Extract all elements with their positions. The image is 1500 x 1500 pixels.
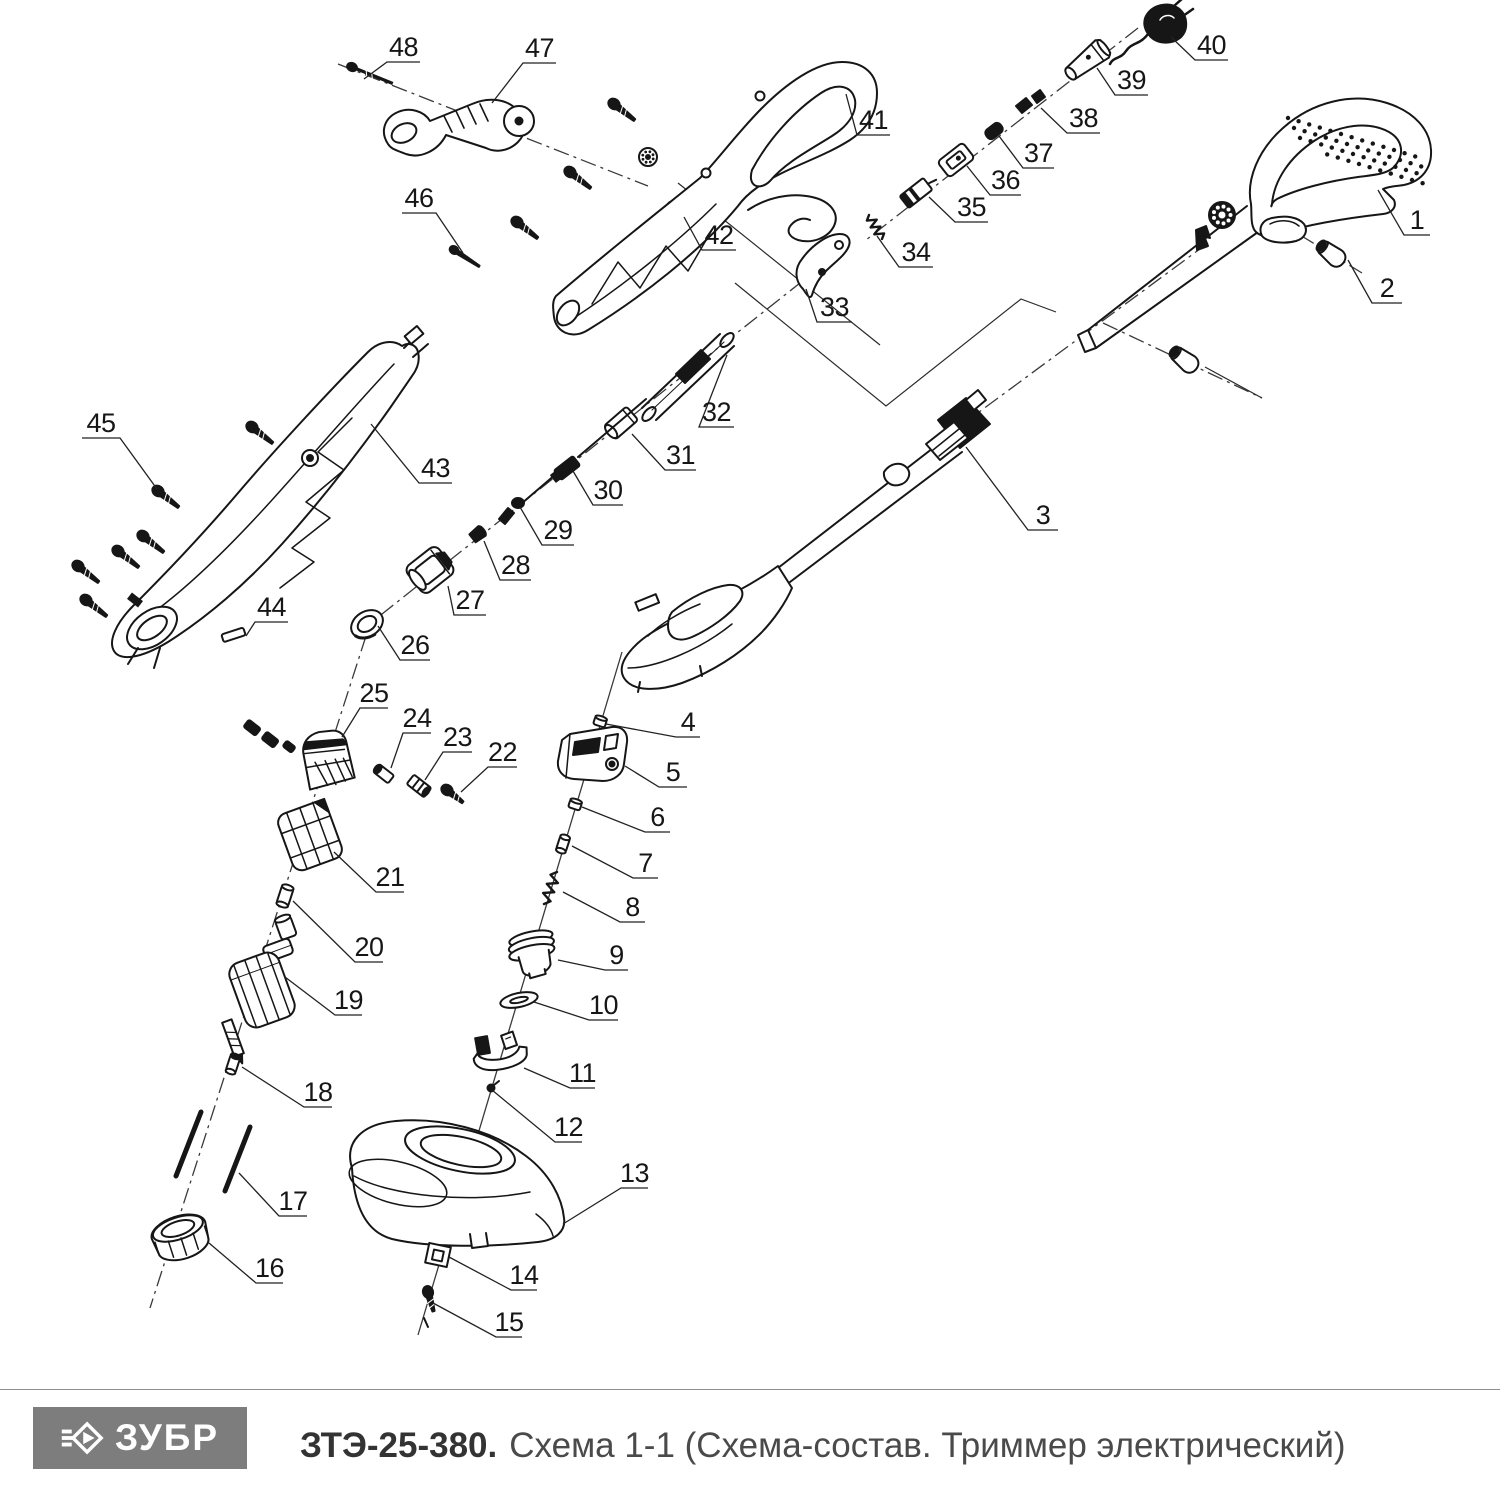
callout-28: 28 [484,541,531,580]
part-number: 5 [666,757,681,787]
callout-14: 14 [449,1257,539,1290]
part-number: 18 [303,1077,332,1107]
part-33-trigger [796,234,849,297]
part-38-terminals [1016,90,1045,113]
part-35-connector [900,172,940,208]
callout-16: 16 [209,1243,284,1283]
part-number: 22 [488,737,517,767]
part-number: 14 [509,1260,539,1290]
part-number: 7 [638,848,653,878]
caption-text: Схема 1-1 (Схема-состав. Триммер электри… [509,1426,1345,1466]
callout-7: 7 [572,846,658,878]
callout-38: 38 [1041,103,1100,133]
part-2b-knob [1166,343,1202,377]
callout-10: 10 [534,990,618,1020]
part-number: 34 [901,237,931,267]
part-number: 16 [255,1253,284,1283]
part-4-ring [593,714,608,727]
part-number: 47 [525,33,554,63]
part-number: 37 [1024,138,1053,168]
part-7-sleeve [555,833,570,854]
callout-2: 2 [1348,260,1402,303]
model-number: ЗТЭ-25-380. [300,1426,497,1466]
part-17-line-pins [176,1112,250,1191]
callout-43: 43 [371,424,452,483]
callout-47: 47 [492,33,556,103]
part-23-brush [407,774,432,797]
part-number: 48 [389,32,418,62]
callout-8: 8 [563,892,645,922]
callout-19: 19 [285,977,363,1015]
part-number: 11 [569,1058,596,1088]
part-40-plug [1110,0,1193,64]
part-number: 38 [1069,103,1098,133]
callout-5: 5 [625,757,687,787]
part-9-spool [505,927,560,981]
callout-11: 11 [524,1058,596,1088]
part-8-spring [543,872,558,904]
zubr-logo-icon [61,1415,107,1461]
part-number: 21 [375,862,404,892]
part-number: 35 [957,192,986,222]
part-18-bushing [225,1052,241,1075]
part-number: 12 [554,1112,583,1142]
part-15-screw-tip [424,1318,428,1327]
part-46-screw [448,244,481,269]
part-number: 19 [334,985,363,1015]
callout-20: 20 [293,901,384,962]
callout-45: 45 [82,408,157,489]
callout-21: 21 [334,852,405,892]
brand-text: ЗУБР [115,1417,219,1459]
callout-29: 29 [520,507,574,545]
callout-36: 36 [967,165,1021,195]
part-number: 26 [400,630,429,660]
part-number: 6 [650,802,665,832]
callout-30: 30 [573,471,623,505]
part-6-ring [568,797,583,810]
part-47-bracket [384,100,534,156]
callout-18: 18 [242,1067,333,1107]
brand-logo: ЗУБР [33,1407,247,1469]
part-number: 36 [991,165,1020,195]
part-20-bearing [276,883,295,909]
callout-48: 48 [364,32,420,79]
part-36-switch [937,142,975,177]
part-21-stator [275,799,344,873]
part-number: 45 [86,408,115,438]
part-2-knob [1313,237,1349,271]
schematic-page: 1234567891011121314151617181920212223242… [0,0,1500,1500]
part-number: 39 [1117,65,1146,95]
callout-37: 37 [999,136,1054,168]
part-number: 42 [704,220,733,250]
part-27-bearing-block [403,543,458,596]
part-number: 30 [593,475,622,505]
part-number: 41 [859,105,888,135]
part-number: 46 [404,183,433,213]
part-number: 17 [278,1186,307,1216]
callout-46: 46 [402,183,463,253]
part-number: 8 [625,892,640,922]
callout-17: 17 [239,1173,308,1216]
part-number: 32 [702,397,731,427]
callout-27: 27 [448,585,486,615]
part-number: 23 [443,722,472,752]
part-37-grommet [984,121,1005,141]
diagram-caption: ЗТЭ-25-380. Схема 1-1 (Схема-состав. Три… [300,1390,1346,1500]
part-number: 2 [1380,273,1395,303]
callout-3: 3 [966,447,1058,530]
part-number: 13 [620,1158,649,1188]
part-14-square-nut [425,1243,451,1267]
footer: ЗУБР ЗТЭ-25-380. Схема 1-1 (Схема-состав… [0,1389,1500,1500]
part-number: 10 [589,990,618,1020]
part-16-collar [148,1208,215,1266]
part-number: 4 [681,707,696,737]
part-number: 24 [402,703,432,733]
part-number: 29 [543,515,572,545]
part-3-shaft [622,390,990,692]
part-number: 1 [1410,205,1425,235]
part-13-guard [344,1118,564,1248]
part-10-washer [499,989,539,1011]
part-25-fan-housing [293,724,359,793]
callout-34: 34 [877,236,933,267]
part-5-gear-mount [558,727,627,781]
part-number: 33 [820,292,849,322]
callout-15: 15 [433,1303,524,1337]
part-number: 28 [501,550,530,580]
part-number: 25 [359,678,388,708]
center-axes [150,28,1362,1335]
part-44-pin [221,627,245,642]
part-19-armature [222,913,298,1065]
callout-9: 9 [558,940,628,970]
callout-24: 24 [391,703,432,768]
callout-35: 35 [929,192,988,222]
part-number: 43 [421,453,450,483]
part-11-spool-cover [470,1030,529,1074]
part-number: 3 [1036,500,1051,530]
part-1-main-handle [1078,99,1431,352]
part-24-brush [372,763,394,783]
part-34-spring [867,215,884,239]
callout-25: 25 [342,678,389,737]
parts-drawing [70,0,1431,1327]
part-39-cord-guard [1061,37,1113,85]
exploded-parts-diagram: 1234567891011121314151617181920212223242… [0,0,1500,1389]
callout-23: 23 [425,722,472,780]
part-number: 40 [1197,30,1226,60]
callout-6: 6 [582,802,670,832]
part-number: 27 [455,585,484,615]
callout-31: 31 [632,434,696,470]
part-number: 44 [257,592,287,622]
callout-12: 12 [492,1090,583,1142]
part-number: 20 [354,932,383,962]
part-26-ring [346,604,388,644]
callout-13: 13 [563,1158,649,1224]
part-number: 9 [609,940,624,970]
callout-39: 39 [1097,65,1148,95]
callout-44: 44 [246,592,288,636]
brush-terminals [243,720,295,753]
part-number: 15 [494,1307,523,1337]
part-number: 31 [666,440,695,470]
part-29-ball-end [499,498,524,524]
part-28-cap [469,525,488,543]
callout-26: 26 [378,626,430,660]
